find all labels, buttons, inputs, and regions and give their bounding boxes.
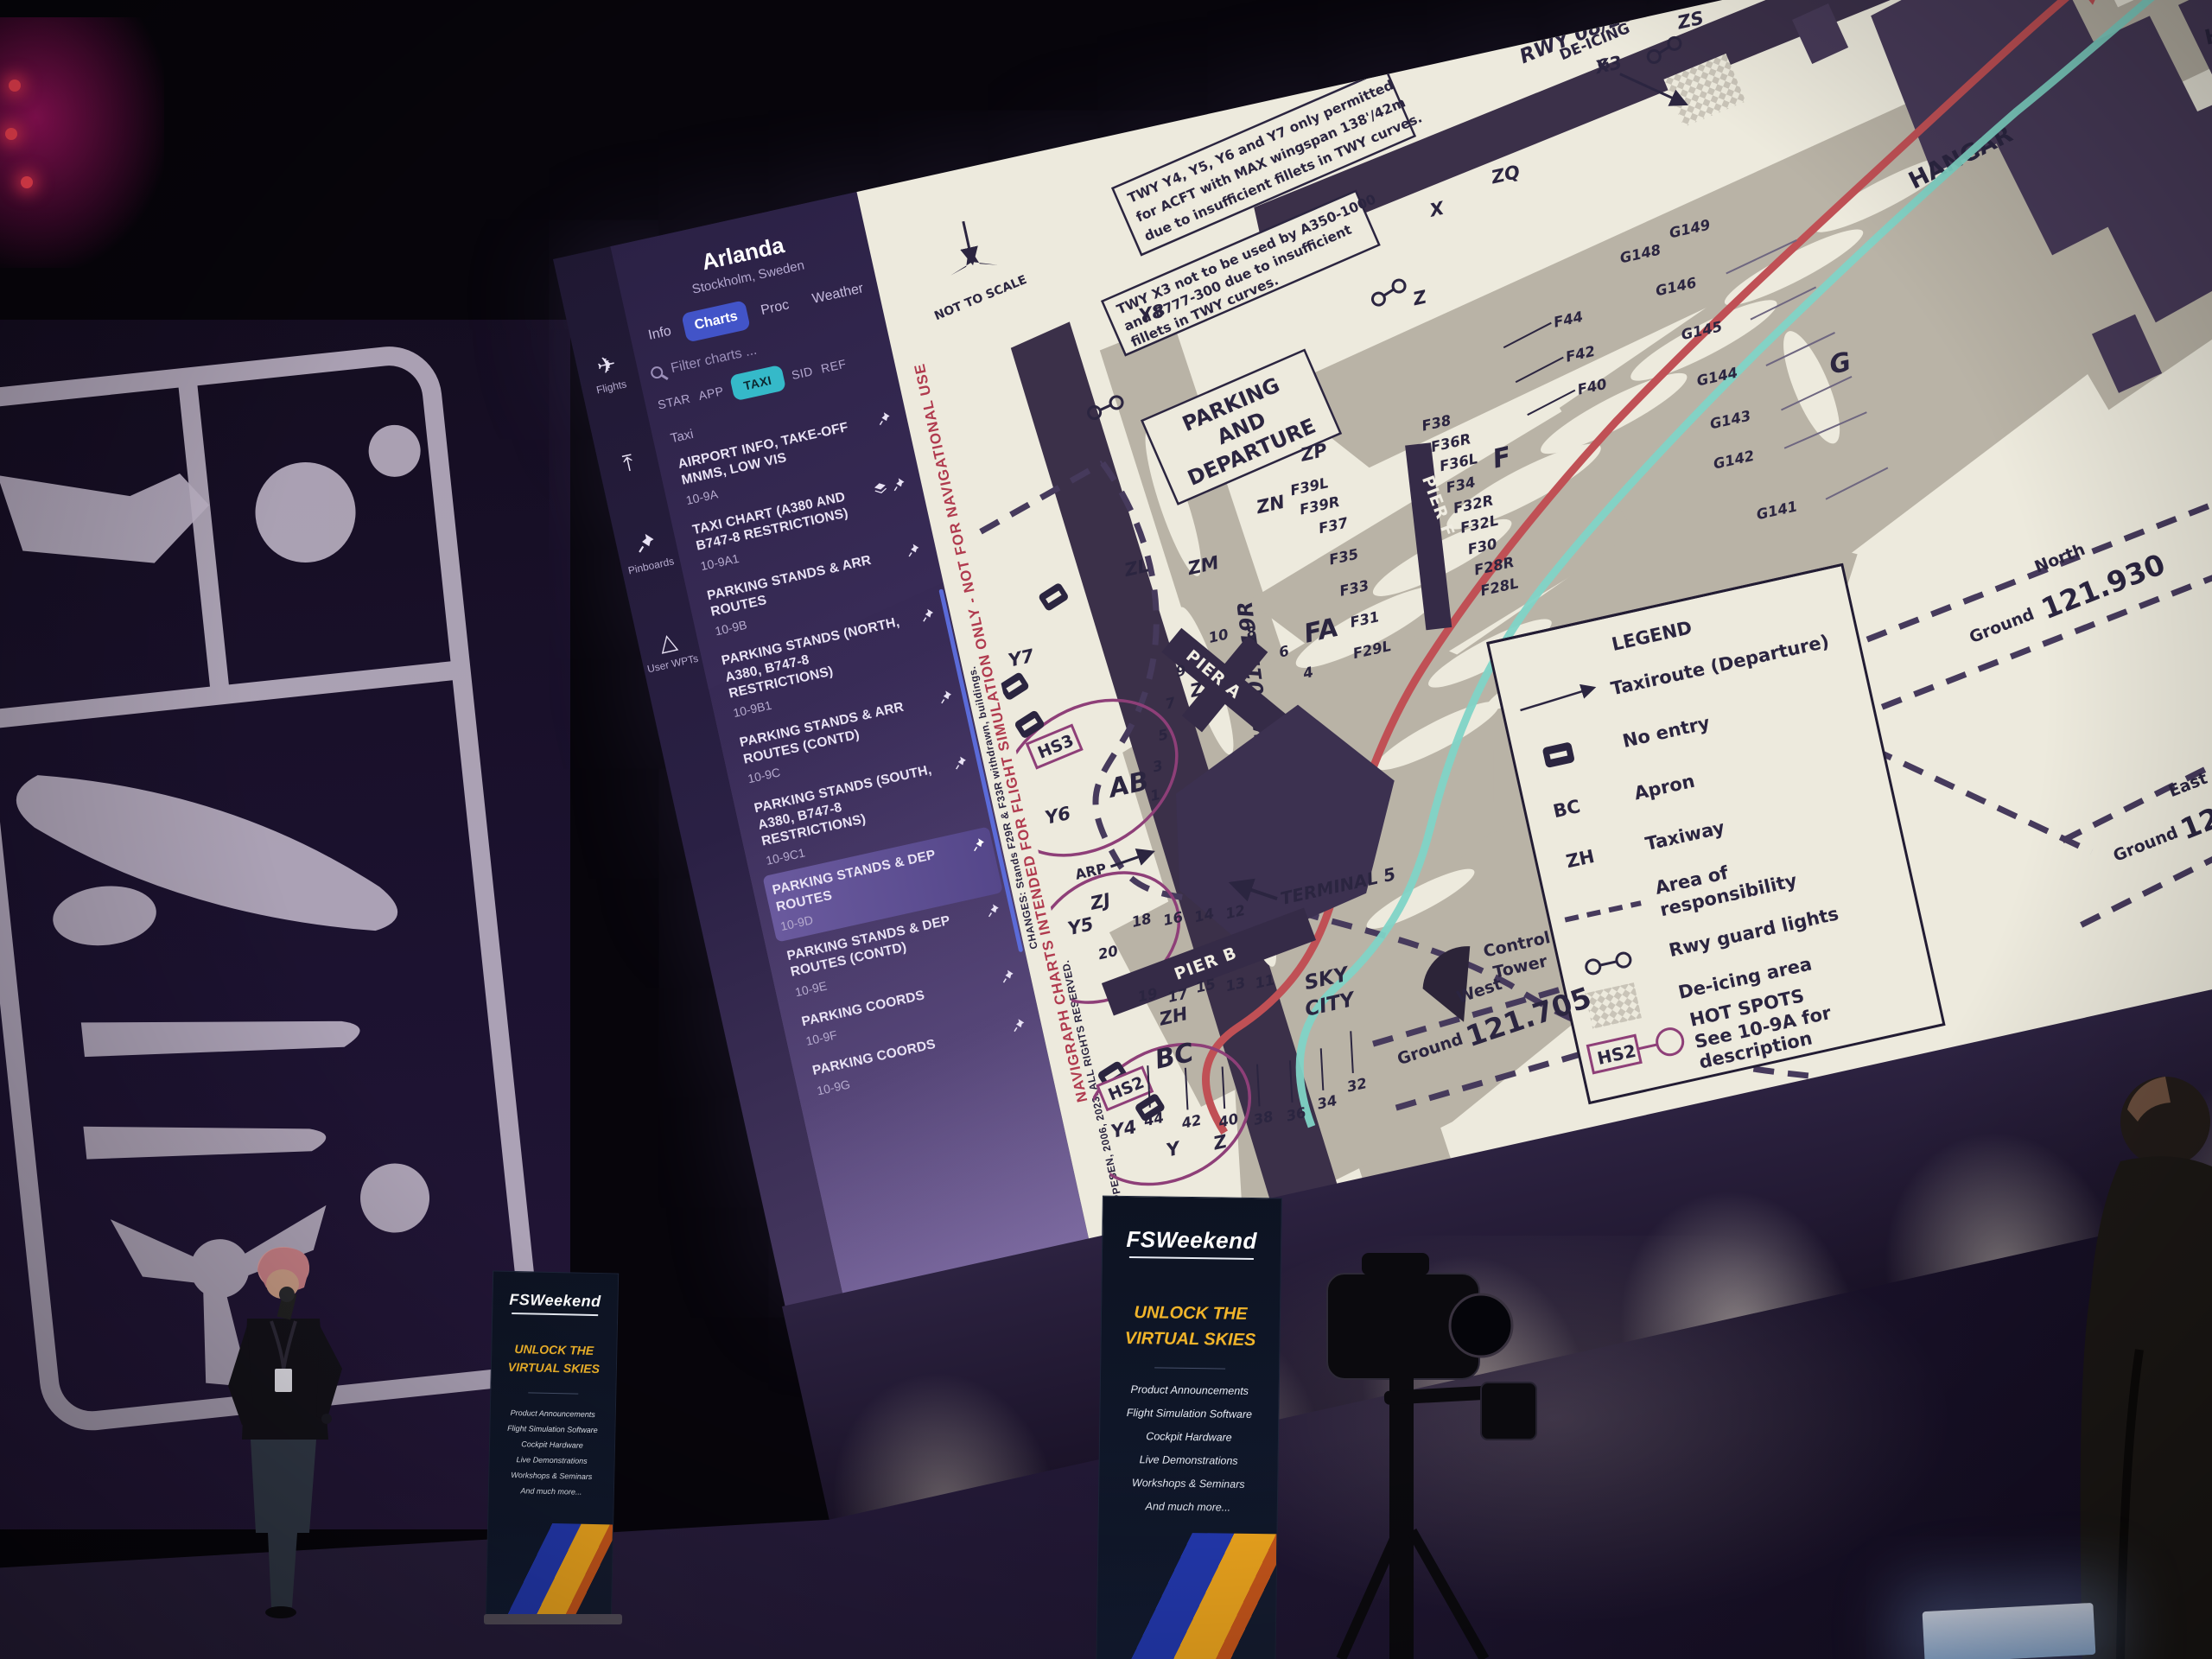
- svg-text:Ground: Ground: [1967, 605, 2037, 647]
- fsweekend-banner-center: FSWeekend UNLOCK THEVIRTUAL SKIES Produc…: [1096, 1196, 1282, 1659]
- svg-text:ZJ: ZJ: [1088, 889, 1113, 914]
- pin-icon[interactable]: [1011, 1017, 1027, 1037]
- svg-text:Z: Z: [1410, 286, 1429, 309]
- divider: [1154, 1367, 1225, 1369]
- banner-item: Flight Simulation Software: [493, 1424, 611, 1435]
- banner-stripes: [486, 1522, 613, 1619]
- laptop-screen-glow: [1923, 1603, 2096, 1659]
- svg-text:Y: Y: [1165, 1137, 1184, 1160]
- banner-item: Workshops & Seminars: [493, 1471, 610, 1482]
- svg-text:F39L: F39L: [1288, 474, 1330, 499]
- presenter: [197, 1239, 370, 1619]
- svg-text:ZP: ZP: [1298, 440, 1330, 466]
- svg-text:F37: F37: [1317, 514, 1350, 537]
- svg-text:44: 44: [1141, 1109, 1166, 1130]
- svg-text:Y5: Y5: [1065, 913, 1095, 939]
- banner-item: Product Announcements: [494, 1408, 612, 1420]
- tab-proc[interactable]: Proc: [748, 289, 803, 328]
- svg-text:Y7: Y7: [1007, 645, 1037, 671]
- banner-item: Cockpit Hardware: [493, 1440, 611, 1451]
- chip-app[interactable]: APP: [697, 384, 725, 403]
- svg-text:Y6: Y6: [1043, 803, 1072, 829]
- banner-stripes: [1096, 1532, 1276, 1659]
- fsweekend-logo: FSWeekend: [1103, 1226, 1281, 1255]
- banner-item: Live Demonstrations: [493, 1455, 611, 1466]
- banner-item: Cockpit Hardware: [1107, 1430, 1271, 1445]
- svg-text:Z: Z: [1211, 1131, 1230, 1154]
- svg-text:X: X: [1426, 197, 1447, 221]
- stage-light: [0, 17, 164, 268]
- stage-scene: ✈ Flights ⤒ Pinboards △ User WPTs Arland…: [0, 0, 2212, 1659]
- svg-text:42: 42: [1179, 1111, 1204, 1132]
- chip-ref[interactable]: REF: [820, 357, 848, 376]
- pin-icon[interactable]: [876, 410, 893, 430]
- svg-text:ZQ: ZQ: [1489, 162, 1522, 188]
- search-icon: [650, 365, 664, 380]
- svg-text:Ground: Ground: [2111, 823, 2181, 866]
- banner-headline: UNLOCK THEVIRTUAL SKIES: [1101, 1300, 1280, 1354]
- logo-underline: [512, 1313, 599, 1316]
- pin-icon[interactable]: [986, 902, 1002, 922]
- rail-item-flights[interactable]: ✈ Flights: [589, 351, 627, 397]
- banner-item: Live Demonstrations: [1107, 1453, 1271, 1468]
- svg-text:North: North: [2032, 540, 2088, 577]
- svg-text:East: East: [2166, 769, 2210, 801]
- pin-icon[interactable]: [971, 836, 988, 856]
- banner-item: Workshops & Seminars: [1106, 1477, 1270, 1491]
- pin-icon[interactable]: [891, 476, 907, 496]
- tab-info[interactable]: Info: [635, 315, 684, 353]
- chip-sid[interactable]: SID: [791, 364, 815, 382]
- fsweekend-logo: FSWeekend: [493, 1291, 617, 1312]
- rail-item-airports[interactable]: ⤒: [621, 451, 636, 475]
- rail-item-user-wpts[interactable]: △ User WPTs: [640, 626, 700, 676]
- light-dot: [21, 176, 33, 188]
- pin-icon[interactable]: [953, 754, 969, 774]
- divider: [528, 1392, 578, 1394]
- pin-icon[interactable]: [906, 542, 922, 562]
- fsweekend-banner-left: FSWeekend UNLOCK THEVIRTUAL SKIES Produc…: [486, 1271, 619, 1621]
- chip-star[interactable]: STAR: [657, 391, 692, 412]
- freq-east: East Ground 121.: [2096, 759, 2212, 873]
- banner-item: Product Announcements: [1108, 1383, 1272, 1398]
- light-dot: [5, 128, 17, 140]
- banner-headline: UNLOCK THEVIRTUAL SKIES: [492, 1340, 617, 1379]
- flights-icon: ✈: [589, 351, 624, 379]
- broadcast-camera: [1312, 1246, 1580, 1659]
- svg-text:40: 40: [1217, 1110, 1241, 1131]
- svg-text:Y4: Y4: [1109, 1116, 1138, 1142]
- svg-text:F39R: F39R: [1298, 493, 1341, 518]
- logo-underline: [1129, 1256, 1254, 1260]
- pin-icon[interactable]: [920, 607, 937, 627]
- pin-icon: [621, 528, 671, 560]
- rail-item-pinboards[interactable]: Pinboards: [621, 528, 676, 577]
- pin-icon[interactable]: [1000, 968, 1016, 988]
- light-dot: [9, 79, 21, 92]
- banner-base: [484, 1614, 622, 1624]
- not-to-scale-label: NOT TO SCALE: [932, 273, 1028, 323]
- banner-item: Flight Simulation Software: [1107, 1407, 1271, 1421]
- svg-text:ARP: ARP: [1073, 860, 1108, 882]
- airports-icon: ⤒: [621, 451, 636, 475]
- banner-item: And much more...: [493, 1486, 610, 1497]
- banner-item: And much more...: [1106, 1500, 1270, 1515]
- rail-label: Flights: [595, 378, 628, 396]
- tab-weather[interactable]: Weather: [799, 272, 877, 316]
- layers-icon: [873, 480, 889, 500]
- tab-charts[interactable]: Charts: [682, 300, 751, 342]
- compass-not-to-scale: NOT TO SCALE: [915, 211, 1033, 324]
- svg-text:20: 20: [1096, 943, 1120, 963]
- chip-taxi[interactable]: TAXI: [729, 365, 786, 401]
- audience-person: [2037, 1065, 2212, 1659]
- svg-text:ZN: ZN: [1254, 492, 1287, 518]
- pin-icon[interactable]: [938, 689, 955, 709]
- rail-label: Pinboards: [627, 555, 676, 576]
